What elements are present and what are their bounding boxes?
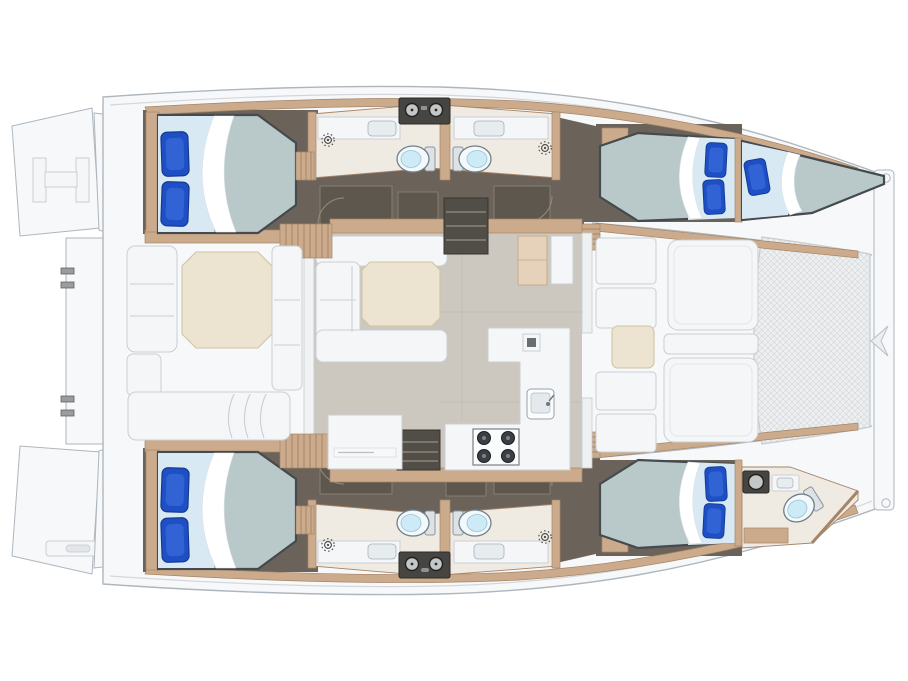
salon	[280, 198, 592, 482]
galley-seat	[551, 236, 573, 284]
pillow-icon	[161, 132, 190, 177]
bow-tip-starboard	[882, 499, 890, 507]
pillow-icon	[705, 142, 728, 177]
companionway-steps-port	[444, 198, 488, 254]
galley-sink-icon	[527, 389, 554, 419]
cabin-aft-port	[146, 112, 296, 233]
cockpit-bench-inner	[272, 246, 302, 390]
pillow-icon	[703, 503, 726, 538]
trampoline-net	[754, 237, 870, 444]
aft-cockpit-bench	[128, 392, 290, 440]
bathroom-wall	[552, 500, 560, 568]
stove-icon	[473, 429, 519, 465]
cockpit-bulkhead	[304, 236, 314, 466]
cabin-forward-starboard	[600, 460, 742, 552]
twin-basin-panel	[399, 98, 450, 124]
foredeck-table	[612, 326, 654, 368]
hatch-box-inner	[527, 338, 536, 347]
deck-locker	[596, 372, 656, 410]
toilet-icon	[453, 510, 491, 536]
aft-cockpit	[127, 246, 302, 440]
cabin-forward-port	[600, 128, 742, 222]
cockpit-table	[182, 252, 272, 348]
berth-divider-wall	[735, 460, 742, 546]
twin-basin-panel	[399, 552, 450, 578]
fridge-cabinet	[518, 236, 547, 285]
nav-table	[328, 415, 402, 469]
companionway-steps-starboard	[397, 430, 440, 470]
toilet-icon	[397, 510, 435, 536]
companionway-hull-starboard	[296, 506, 314, 534]
utility-panel	[743, 471, 769, 493]
forward-bulkhead-lower	[582, 398, 592, 468]
deck-locker	[596, 238, 656, 284]
sink-icon	[368, 544, 396, 559]
toilet-icon	[453, 146, 491, 172]
sink-icon	[777, 478, 793, 488]
pillow-icon	[705, 466, 728, 501]
bathroom-wall	[552, 112, 560, 180]
forward-cockpit	[596, 238, 758, 452]
sink-icon	[474, 121, 504, 136]
companionway-hull-port	[296, 152, 314, 180]
pillow-icon	[161, 468, 190, 513]
lounge-pad-starboard	[664, 358, 758, 442]
salon-entry-slats-starboard	[280, 434, 328, 468]
lounge-pad-port	[668, 240, 758, 330]
pillow-icon	[703, 179, 726, 214]
catamaran-floor-plan	[0, 0, 908, 681]
lounge-step	[664, 334, 758, 354]
bench	[744, 528, 788, 543]
sink-icon	[368, 121, 396, 136]
sink-icon	[474, 544, 504, 559]
pillow-icon	[161, 518, 190, 563]
wardrobe	[320, 186, 392, 224]
head-starboard-aft	[308, 500, 560, 578]
forward-bulkhead-upper	[582, 233, 592, 333]
pillow-icon	[161, 182, 190, 227]
deck-plan-svg	[0, 0, 908, 681]
cabin-aft-starboard	[146, 450, 296, 570]
deck-locker	[596, 288, 656, 328]
toilet-icon	[397, 146, 435, 172]
salon-table	[362, 262, 440, 326]
deck-locker	[596, 414, 656, 452]
